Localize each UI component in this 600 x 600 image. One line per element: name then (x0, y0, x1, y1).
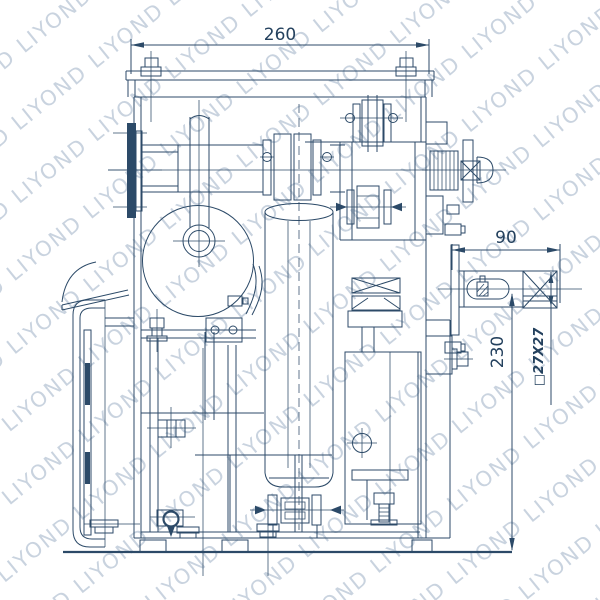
dim-260-label: 260 (264, 25, 296, 45)
technical-drawing: LIYOND LIYOND LIYOND LIYOND LIYOND LIYON… (0, 0, 600, 600)
dim-90-label: 90 (495, 228, 517, 248)
dim-27x27-label: □27X27 (532, 327, 547, 386)
dim-230-label: 230 (488, 336, 508, 368)
